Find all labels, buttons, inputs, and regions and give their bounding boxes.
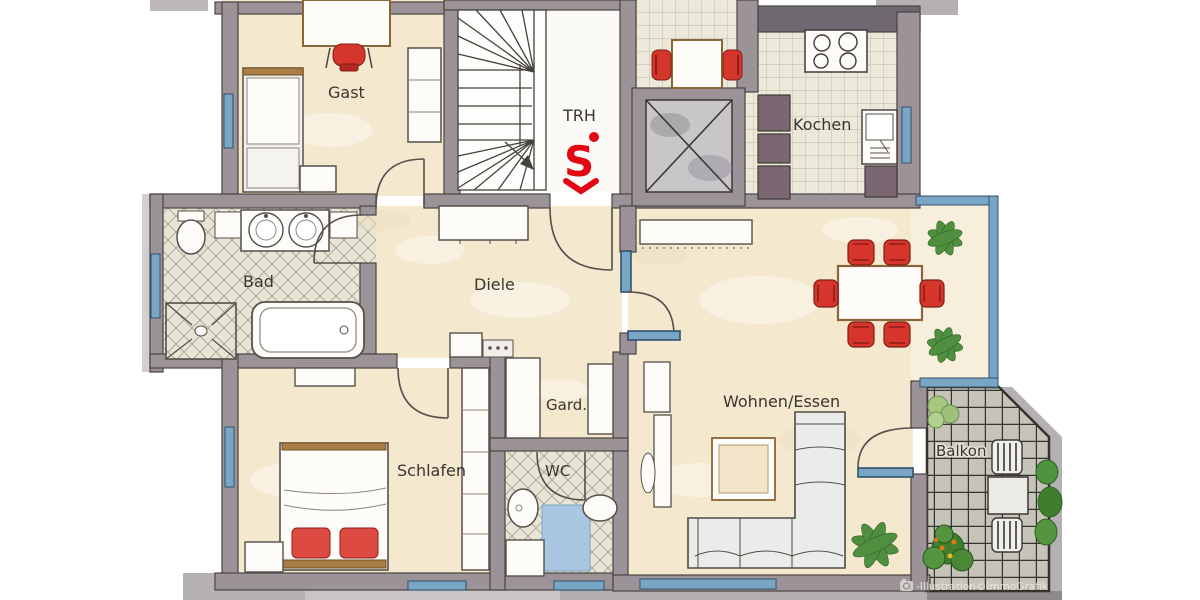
shelf-schlafen	[295, 368, 355, 386]
staircase	[458, 10, 546, 190]
floor-plan-svg: S Gast TRH Kochen Bad Diele Gard. Schlaf…	[0, 0, 1200, 600]
wardrobe-gast	[408, 48, 441, 142]
label-diele: Diele	[474, 275, 515, 294]
elevator	[646, 100, 732, 192]
wardrobe-schlafen	[462, 368, 489, 570]
desk	[303, 0, 390, 46]
glazing-top	[916, 196, 998, 205]
label-gard: Gard.	[546, 396, 587, 414]
label-kochen: Kochen	[793, 115, 851, 134]
dining-table	[838, 266, 922, 320]
toilet-bad	[177, 211, 205, 254]
watermark-text: -Illustration©ImmoGrafik	[916, 581, 1049, 593]
window-wc	[554, 581, 604, 590]
window-bad	[151, 254, 160, 318]
sparkasse-letter: S	[564, 137, 594, 186]
floor-vase	[641, 453, 655, 493]
balkon-chair-bottom	[992, 518, 1022, 552]
pillow-left	[292, 528, 330, 558]
window-kochen	[902, 107, 911, 163]
nook-chair-right	[723, 50, 742, 80]
cabinet-tall-2	[654, 415, 671, 507]
window-wohnen	[640, 579, 776, 589]
sparkasse-logo: S	[564, 132, 599, 191]
furniture-balkon	[988, 440, 1028, 552]
double-bed	[280, 443, 388, 570]
stove	[805, 30, 867, 72]
wardrobe-gard-right	[588, 364, 613, 434]
balkon-chair-top	[992, 440, 1022, 474]
washer	[506, 540, 544, 576]
watermark: -Illustration©ImmoGrafik	[900, 579, 1049, 593]
pillow-right	[340, 528, 378, 558]
kitchen-sink	[862, 110, 897, 164]
stool	[300, 166, 336, 192]
shower-mat	[542, 505, 590, 571]
toilet-wc	[508, 489, 538, 527]
floor-plan-illustration: S Gast TRH Kochen Bad Diele Gard. Schlaf…	[0, 0, 1200, 600]
shower	[166, 303, 236, 359]
nook-table	[672, 40, 722, 88]
hall-table	[450, 333, 482, 357]
bath-cabinet-left	[215, 212, 241, 238]
nook-chair-left	[652, 50, 671, 80]
label-trh: TRH	[562, 106, 596, 125]
sideboard-wohnen	[640, 220, 752, 244]
bathtub	[252, 302, 364, 358]
label-schlafen: Schlafen	[397, 461, 466, 480]
label-wc: WC	[545, 462, 570, 480]
label-gast: Gast	[328, 83, 365, 102]
coffee-table	[712, 438, 775, 500]
window-gast	[224, 94, 233, 148]
balkon-table	[988, 477, 1028, 514]
wardrobe-gard-left	[506, 358, 540, 438]
sideboard-diele	[439, 206, 528, 240]
sink-wc	[583, 495, 617, 521]
window-schlafen-left	[225, 427, 234, 487]
glazing-bottom	[920, 378, 998, 387]
window-schlafen-bottom	[408, 581, 466, 590]
label-wohnen-essen: Wohnen/Essen	[723, 392, 840, 411]
single-bed	[243, 68, 303, 192]
label-balkon: Balkon	[936, 442, 987, 460]
nightstand	[245, 542, 283, 572]
cabinet-tall-1	[644, 362, 670, 412]
glazing-right	[989, 196, 998, 388]
label-bad: Bad	[243, 272, 274, 291]
